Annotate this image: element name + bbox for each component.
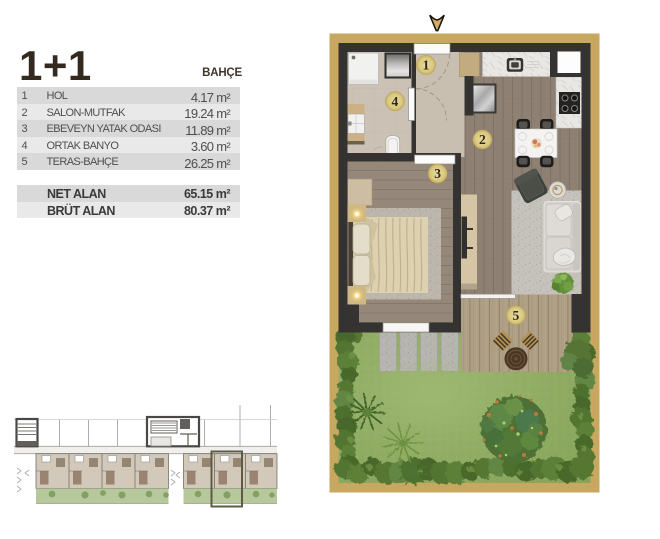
svg-text:4: 4 (392, 94, 399, 109)
svg-text:5: 5 (513, 308, 520, 323)
svg-text:2: 2 (479, 132, 486, 147)
svg-text:3: 3 (434, 166, 441, 181)
svg-text:1: 1 (423, 58, 430, 73)
